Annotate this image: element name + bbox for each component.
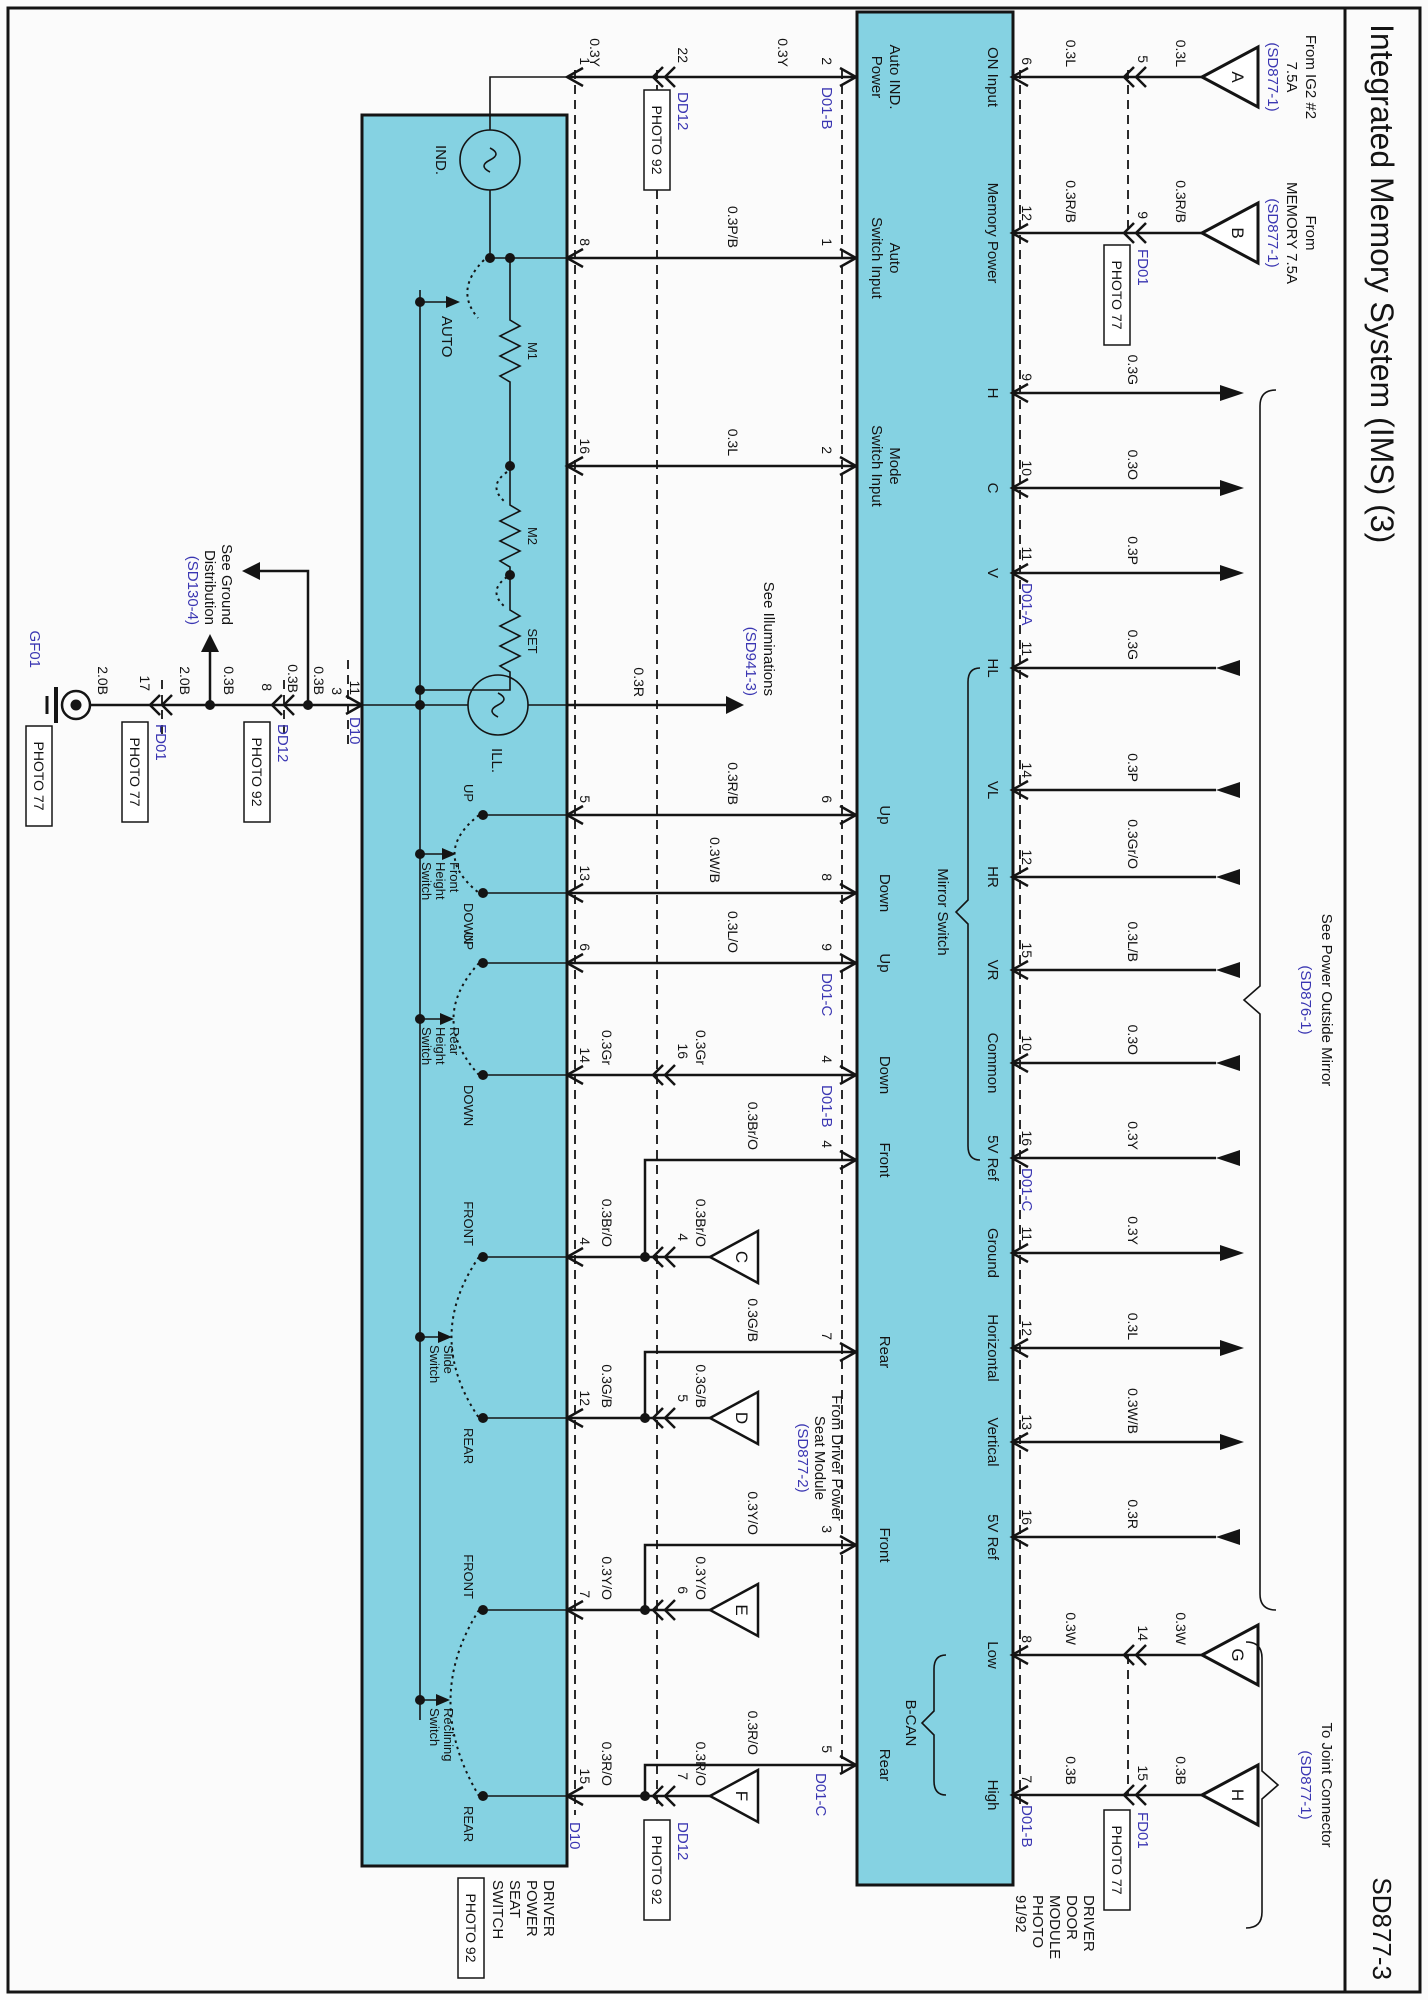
wire-color: 0.3B [311,666,327,695]
row-label: Mode [886,447,903,485]
photo-ref: PHOTO 77 [127,738,143,807]
page: Integrated Memory System (IMS) (3) SD877… [0,0,1428,2000]
contact-label: FRONT [461,1201,476,1246]
connector-triangles-top: A B G H [1202,47,1258,1825]
inline-pin: 4 [675,1233,691,1241]
wire-color: 0.3L [725,429,741,456]
wire-color: 0.3Y [775,38,791,67]
switch-name: Front [447,862,462,893]
row-label: VL [984,781,1001,799]
ref-mirror-l2: (SD876-1) [1297,965,1314,1034]
driver-power-seat-switch-band [362,115,567,1866]
wire-color: 0.3G/B [745,1298,761,1342]
ref-joint-l2: (SD877-1) [1297,1750,1314,1819]
ref-ig2-l1: From IG2 #2 [1302,35,1319,119]
row-label: Power [868,56,885,99]
photo-ref: PHOTO 77 [1109,1826,1125,1895]
ref-joint-l1: To Joint Connector [1318,1722,1335,1847]
ref-seat-module-l1: From Driver Power [828,1395,845,1521]
switch-name: Switch [419,862,434,900]
wire-color: 0.3B [285,664,301,693]
pin-number: 14 [1019,762,1035,778]
switch-name: Reclining [441,1708,456,1761]
triangle-f-letter: F [732,1791,751,1801]
ref-memory-l1: From [1302,216,1319,251]
wire-color: 0.3Y/O [693,1556,709,1600]
wire-color: 2.0B [95,666,111,695]
row-label: 5V Ref [984,1514,1001,1561]
connector-d10: D10 [346,717,363,745]
m2-label: M2 [525,527,540,545]
switch-name: Switch [419,1027,434,1065]
door-module-name: 91/92 [1012,1895,1029,1933]
pin-number: 2 [819,446,835,454]
seat-pin-number: 7 [577,1590,593,1598]
ref-seat-module-l2: Seat Module [811,1416,828,1500]
connector-dd12: DD12 [674,92,691,130]
ground-chain: See Ground Distribution (SD130-4) 11 D10… [26,544,363,826]
switch-name: Slide [441,1345,456,1374]
connector-gf01: GF01 [26,630,43,668]
pin-number: 3 [329,687,345,695]
pin-number: 11 [1019,1226,1035,1241]
pin-number: 4 [819,1055,835,1063]
ref-memory-l2: MEMORY 7.5A [1283,182,1300,284]
pin-number: 15 [1019,942,1035,958]
row-label: H [984,388,1001,399]
wire-color: 0.3Gr [599,1030,615,1065]
connector-tag: D01-C [812,1773,829,1817]
pin-number: 6 [819,795,835,803]
seat-pin-number: 6 [577,943,593,951]
wire-color: 0.3L [1063,40,1079,67]
wire-color: 0.3W [1173,1612,1189,1645]
seat-pin-number: 14 [577,1047,593,1063]
inline-pin: 7 [675,1772,691,1780]
wire-color: 0.3G [1125,355,1141,385]
illumination-branch: See Illuminations (SD941-3) 0.3R [567,582,777,714]
row-label: Rear [876,1749,893,1782]
bottom-row-labels: Auto IND. Power 2 D01-B 0.3Y 22 0.3Y 1 D… [566,38,903,1920]
wire-color: 0.3B [1063,1756,1079,1785]
ill-lamp-label: ILL. [488,748,505,773]
row-label: Common [984,1033,1001,1094]
pin-number: 13 [1019,1414,1035,1430]
seat-pin-number: 5 [577,795,593,803]
pin-number: 5 [819,1745,835,1753]
row-label: Front [876,1527,893,1563]
inline-pin: 6 [675,1586,691,1594]
wire-color: 0.3O [1125,450,1141,480]
ref-ground-l3: (SD130-4) [184,556,201,625]
seat-pin-number: 13 [577,865,593,881]
pin-number: 8 [819,873,835,881]
ref-illum-l1: See Illuminations [760,582,777,696]
ref-memory-l3: (SD877-1) [1264,198,1281,267]
seat-pin-number: 1 [577,57,593,65]
inline-pin: 11 [347,680,363,695]
triangle-h-letter: H [1228,1789,1247,1801]
mirror-brace [1244,390,1276,1610]
pin-number: 7 [819,1332,835,1340]
switch-name: Switch [427,1345,442,1383]
row-label: Down [876,1056,893,1094]
wiring-diagram: Integrated Memory System (IMS) (3) SD877… [0,0,1428,2000]
pin-number: 9 [819,943,835,951]
row-label: Switch Input [868,425,885,508]
module-name-labels: DRIVER DOOR MODULE PHOTO 91/92 DRIVER PO… [458,1878,1097,1978]
pin-number: 1 [819,238,835,246]
contact-label: DOWN [461,1085,476,1126]
connector-tag: D01-C [818,973,835,1017]
bottom-wires [567,67,857,1806]
row-label: Ground [984,1228,1001,1278]
connector-d10: D10 [566,1822,583,1850]
pin-number: 10 [1019,460,1035,476]
wire-color: 0.3Br/O [693,1199,709,1247]
connector-tag: D01-A [1018,583,1035,626]
connector-tag: D01-B [818,1085,835,1128]
pin-number: 11 [1019,641,1035,656]
pin-number: 2 [819,57,835,65]
ref-ground-l1: See Ground [218,544,235,625]
triangle-a-letter: A [1228,71,1247,83]
row-label: Rear [876,1336,893,1369]
ref-ig2-l3: (SD877-1) [1264,42,1281,111]
ind-lamp-label: IND. [432,145,449,175]
pin-number: 16 [1019,1130,1035,1146]
pin-number: 12 [1019,205,1035,221]
row-label: Down [876,874,893,912]
page-code: SD877-3 [1367,1877,1397,1980]
row-label: Low [984,1641,1001,1669]
wire-color: 0.3R [1125,1499,1141,1529]
wire-color: 0.3G/B [693,1364,709,1408]
pin-number: 8 [1019,1635,1035,1643]
bcan-label: B-CAN [902,1700,919,1747]
wire-color: 0.3G/B [599,1364,615,1408]
door-module-name: DRIVER [1080,1895,1097,1952]
inline-pin: 9 [1135,211,1151,219]
photo-ref: PHOTO 92 [463,1894,479,1963]
row-label: Front [876,1142,893,1178]
wire-color: 0.3P/B [725,206,741,248]
wire-color: 0.3Br/O [745,1102,761,1150]
wire-color: 0.3G [1125,630,1141,660]
connector-tag: D01-B [818,87,835,130]
door-module-name: PHOTO [1029,1895,1046,1948]
row-label: Horizontal [984,1314,1001,1382]
pin-number: 11 [1019,546,1035,561]
seat-pin-number: 15 [577,1768,593,1784]
triangle-c-letter: C [732,1251,751,1263]
photo-ref: PHOTO 92 [249,738,265,807]
row-label: HL [984,658,1001,677]
wire-color: 0.3W/B [1125,1388,1141,1434]
seat-pin-number: 4 [577,1237,593,1245]
row-label: Up [876,805,893,824]
ref-mirror-l1: See Power Outside Mirror [1318,914,1335,1087]
inline-pin: 14 [1135,1625,1151,1641]
door-module-name: MODULE [1046,1895,1063,1959]
switch-name: Switch [427,1708,442,1746]
set-label: SET [525,628,540,653]
wire-color: 0.3R/B [725,762,741,805]
wire-color: 0.3Y [1125,1121,1141,1150]
connector-dd12: DD12 [674,1822,691,1860]
page-frame: Integrated Memory System (IMS) (3) SD877… [8,8,1420,1992]
ground-symbol [47,687,90,723]
seat-switch-name: SEAT [506,1880,523,1918]
wire-color: 0.3R/O [599,1742,615,1786]
wire-color: 0.3L/B [1125,922,1141,962]
inline-pin: 15 [1135,1765,1151,1781]
wire-color: 0.3Y [1125,1216,1141,1245]
pin-number: 9 [1019,373,1035,381]
rotated-canvas: Integrated Memory System (IMS) (3) SD877… [0,0,1428,2000]
seat-pin-number: 12 [577,1390,593,1406]
inline-pin: 16 [675,1043,691,1059]
row-label: Memory Power [984,183,1001,284]
row-label: VR [984,960,1001,981]
ref-seat-module-l3: (SD877-2) [794,1423,811,1492]
connector-fd01: FD01 [1134,249,1151,286]
photo-ref: PHOTO 77 [1109,261,1125,330]
wire-color: 0.3Gr/O [1125,819,1141,869]
pin-number: 12 [1019,849,1035,865]
ref-ig2-l2: 7.5A [1283,62,1300,93]
pin-number: 4 [819,1140,835,1148]
photo-ref: PHOTO 77 [31,742,47,811]
photo-ref: PHOTO 92 [649,1836,665,1905]
row-label: Up [876,953,893,972]
photo-ref: PHOTO 92 [649,106,665,175]
contact-label: FRONT [461,1554,476,1599]
ref-ground-l2: Distribution [201,550,218,625]
contact-label: REAR [461,1806,476,1842]
row-label: C [984,483,1001,494]
seat-switch-name: SWITCH [489,1880,506,1939]
pin-number: 7 [1019,1775,1035,1783]
pin-number: 12 [1019,1320,1035,1336]
seat-switch-name: POWER [523,1880,540,1937]
wire-color: 0.3B [1173,1756,1189,1785]
wire-color: 0.3L [1125,1313,1141,1340]
seat-switch-name: DRIVER [540,1880,557,1937]
wire-color: 0.3W/B [707,837,723,883]
wire-color: 0.3Br/O [599,1199,615,1247]
pin-number: 3 [819,1525,835,1533]
wire-color: 0.3B [221,666,237,695]
triangle-b-letter: B [1228,227,1247,238]
wire-color: 0.3Y/O [599,1556,615,1600]
wire-color: 0.3L/O [725,911,741,953]
pin-number: 6 [1019,57,1035,65]
connector-tag: D01-C [1018,1168,1035,1212]
pin-number: 16 [1019,1509,1035,1525]
door-module-name: DOOR [1063,1895,1080,1940]
row-label: ON Input [984,47,1001,108]
inline-pin: 5 [675,1394,691,1402]
seat-pin-number: 16 [577,438,593,454]
auto-switch-label: AUTO [438,316,455,357]
wire-color: 0.3R/B [1173,180,1189,223]
inline-pin: 22 [675,47,691,63]
row-label: Auto [886,243,903,274]
wire-color: 0.3R [631,667,647,697]
switch-name: Height [433,862,448,900]
wire-color: 0.3O [1125,1025,1141,1055]
mirror-switch-label: Mirror Switch [934,868,951,956]
wire-color: 0.3W [1063,1612,1079,1645]
wire-color: 0.3P [1125,753,1141,782]
wire-color: 2.0B [177,666,193,695]
wire-color: 0.3L [1173,40,1189,67]
row-label: V [984,568,1001,578]
triangle-d-letter: D [732,1412,751,1424]
pin-number: 10 [1019,1035,1035,1051]
page-title: Integrated Memory System (IMS) (3) [1364,24,1400,543]
contact-label: UP [461,932,476,950]
connector-fd01: FD01 [152,724,169,761]
wire-color: 0.3R/O [745,1711,761,1755]
wire-color: 0.3R/B [1063,180,1079,223]
row-label: Switch Input [868,217,885,300]
triangle-g-letter: G [1228,1648,1247,1661]
connector-tag: D01-B [1018,1805,1035,1848]
inline-pin: 8 [259,683,275,691]
inline-pin: 17 [137,675,153,691]
wire-color: 0.3Y/O [745,1491,761,1535]
switch-name: Height [433,1027,448,1065]
connector-dd12: DD12 [274,724,291,762]
connector-fd01: FD01 [1134,1812,1151,1849]
inline-pin: 5 [1135,55,1151,63]
m1-label: M1 [525,342,540,360]
wire-color: 0.3P [1125,536,1141,565]
row-label: HR [984,866,1001,888]
wire-color: 0.3R/O [693,1742,709,1786]
contact-label: UP [461,784,476,802]
triangle-e-letter: E [732,1604,751,1615]
seat-pin-number: 8 [577,238,593,246]
ref-illum-l2: (SD941-3) [742,627,759,696]
row-label: High [984,1780,1001,1811]
switch-name: Rear [447,1027,462,1056]
wire-color: 0.3Gr [693,1030,709,1065]
reference-labels-top: From IG2 #2 7.5A (SD877-1) From MEMORY 7… [1264,35,1335,1848]
row-label: 5V Ref [984,1135,1001,1182]
contact-label: REAR [461,1428,476,1464]
row-label: Auto IND. [886,44,903,109]
row-label: Vertical [984,1417,1001,1466]
